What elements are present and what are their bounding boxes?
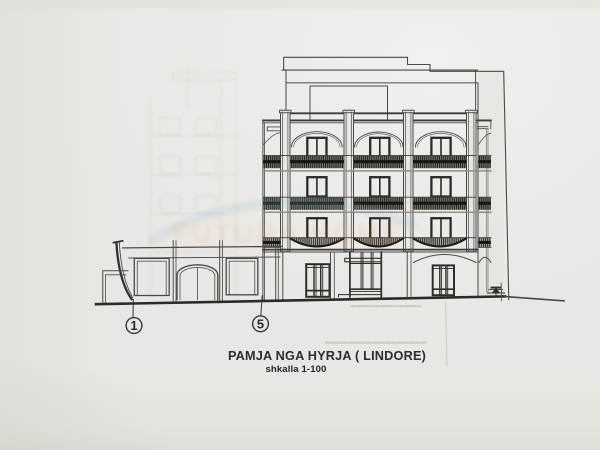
svg-text:1: 1 bbox=[130, 318, 137, 333]
svg-text:shkalla 1-100: shkalla 1-100 bbox=[265, 364, 326, 375]
svg-text:5: 5 bbox=[257, 317, 264, 332]
svg-text:PAMJA NGA HYRJA ( LINDORE): PAMJA NGA HYRJA ( LINDORE) bbox=[228, 349, 426, 363]
svg-text:FUTURA HOME: FUTURA HOME bbox=[172, 219, 403, 249]
